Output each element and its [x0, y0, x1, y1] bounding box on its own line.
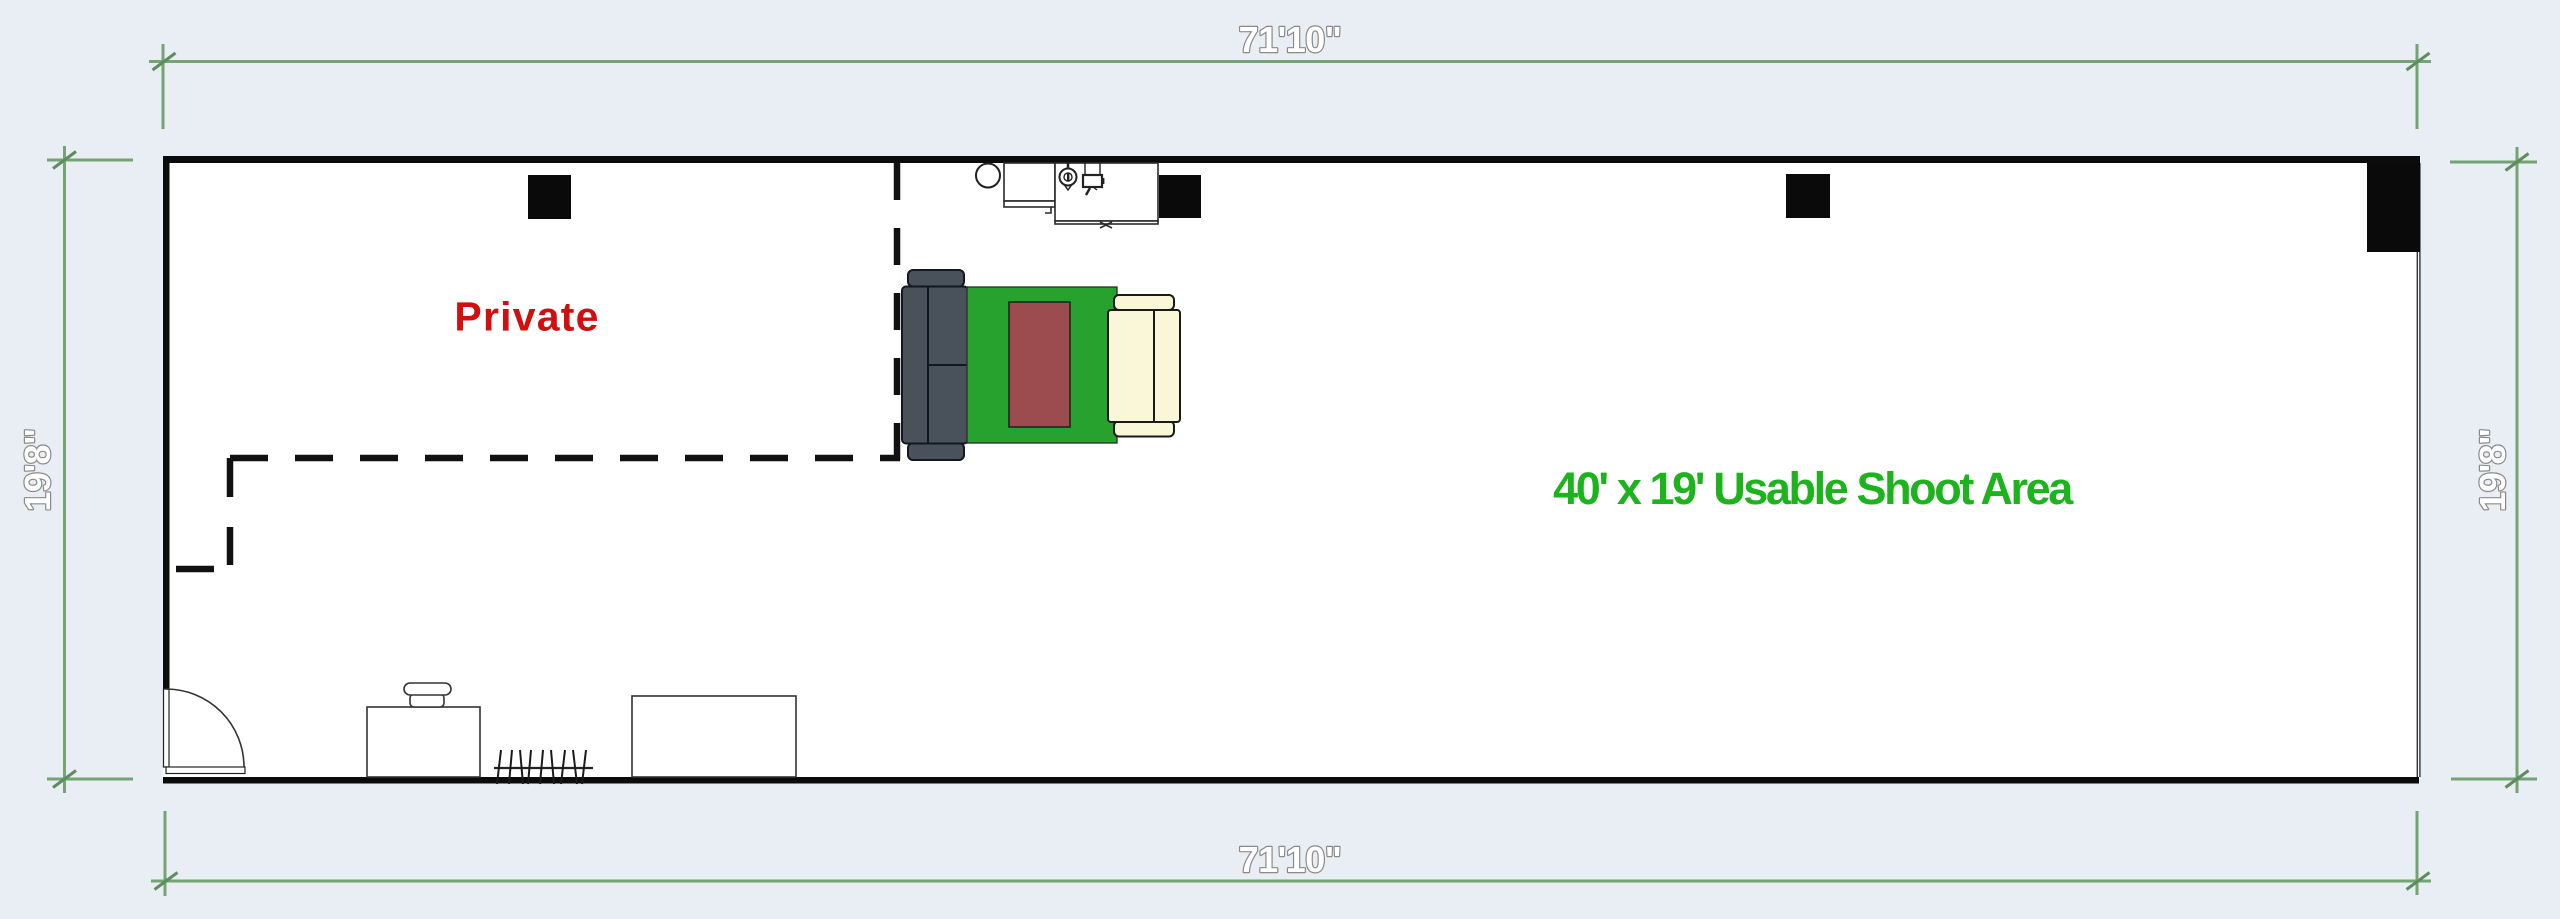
- svg-text:40' x 19' Usable Shoot Area: 40' x 19' Usable Shoot Area: [1553, 463, 2074, 514]
- svg-text:71'10": 71'10": [1239, 839, 1342, 880]
- svg-text:71'10": 71'10": [1239, 19, 1342, 60]
- svg-text:Private: Private: [454, 294, 599, 340]
- svg-text:19'8": 19'8": [2472, 428, 2513, 511]
- svg-text:19'8": 19'8": [17, 428, 58, 511]
